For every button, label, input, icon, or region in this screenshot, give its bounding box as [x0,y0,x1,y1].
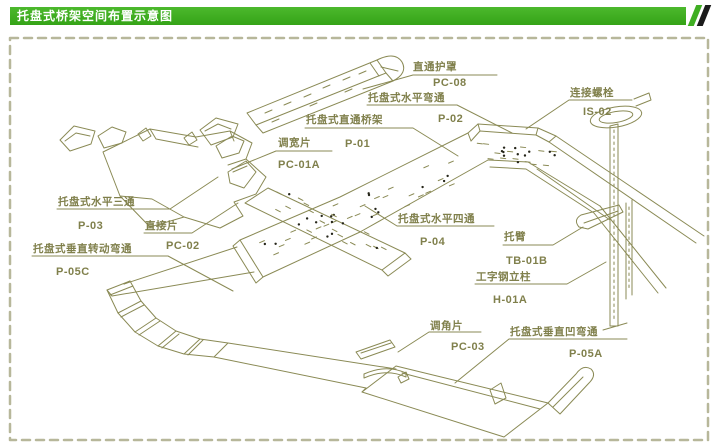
part-code: P-02 [438,113,463,125]
label-h01a: 工字钢立柱 H-01A [476,271,531,306]
label-p04: 托盘式水平四通 P-04 [398,213,475,248]
part-name: 托盘式水平四通 [398,213,475,226]
label-tb01b: 托臂 TB-01B [504,231,548,267]
part-code: PC-01A [278,159,320,171]
part-code: P-04 [420,236,475,248]
part-name: 托盘式垂直凹弯通 [510,326,603,339]
label-pc01a: 调宽片 PC-01A [278,137,320,171]
screenshot-root: 托盘式桥架空间布置示意图 [0,0,720,448]
label-p03: 托盘式水平三通 P-03 [58,196,135,232]
right-run-rails [537,136,704,293]
branch-rails [112,247,254,296]
part-name: 托盘式水平弯通 [368,92,463,105]
width-adjuster-pieces [60,118,256,188]
part-name: 托盘式水平三通 [58,196,135,209]
cross-fitting-p04 [233,133,488,283]
label-pc02: 直接片 PC-02 [145,220,200,252]
part-code: P-03 [78,220,135,232]
part-name: 直接片 [145,220,200,233]
part-name: 托盘式垂直转动弯通 [33,243,132,256]
concave-bend-p05a [548,367,594,414]
vertical-elbow-p05c [107,281,228,357]
label-is02: 连接螺栓 IS-02 [570,87,614,118]
part-code: P-05A [569,348,603,360]
bolt-is02 [634,93,651,106]
part-code: PC-02 [166,240,200,252]
part-code: P-01 [345,138,383,150]
label-p05c: 托盘式垂直转动弯通 P-05C [33,243,132,278]
part-code: PC-08 [433,77,467,89]
label-p05a: 托盘式垂直凹弯通 P-05A [510,326,603,360]
part-name: 工字钢立柱 [476,271,531,284]
part-name: 托臂 [504,231,548,244]
part-code: TB-01B [506,255,548,267]
label-pc03: 调角片 PC-03 [430,320,485,353]
part-name: 连接螺栓 [570,87,614,100]
part-name: 调宽片 [278,137,320,150]
angle-piece-pc03 [356,340,395,359]
bottom-run-rails [214,343,396,388]
part-code: IS-02 [583,106,614,118]
part-code: P-05C [56,266,132,278]
label-pc08: 直通护罩 PC-08 [413,61,467,89]
part-name: 直通护罩 [413,61,467,74]
part-name: 调角片 [430,320,485,333]
part-code: PC-03 [451,341,485,353]
part-code: H-01A [493,294,531,306]
part-name: 托盘式直通桥架 [306,114,383,127]
